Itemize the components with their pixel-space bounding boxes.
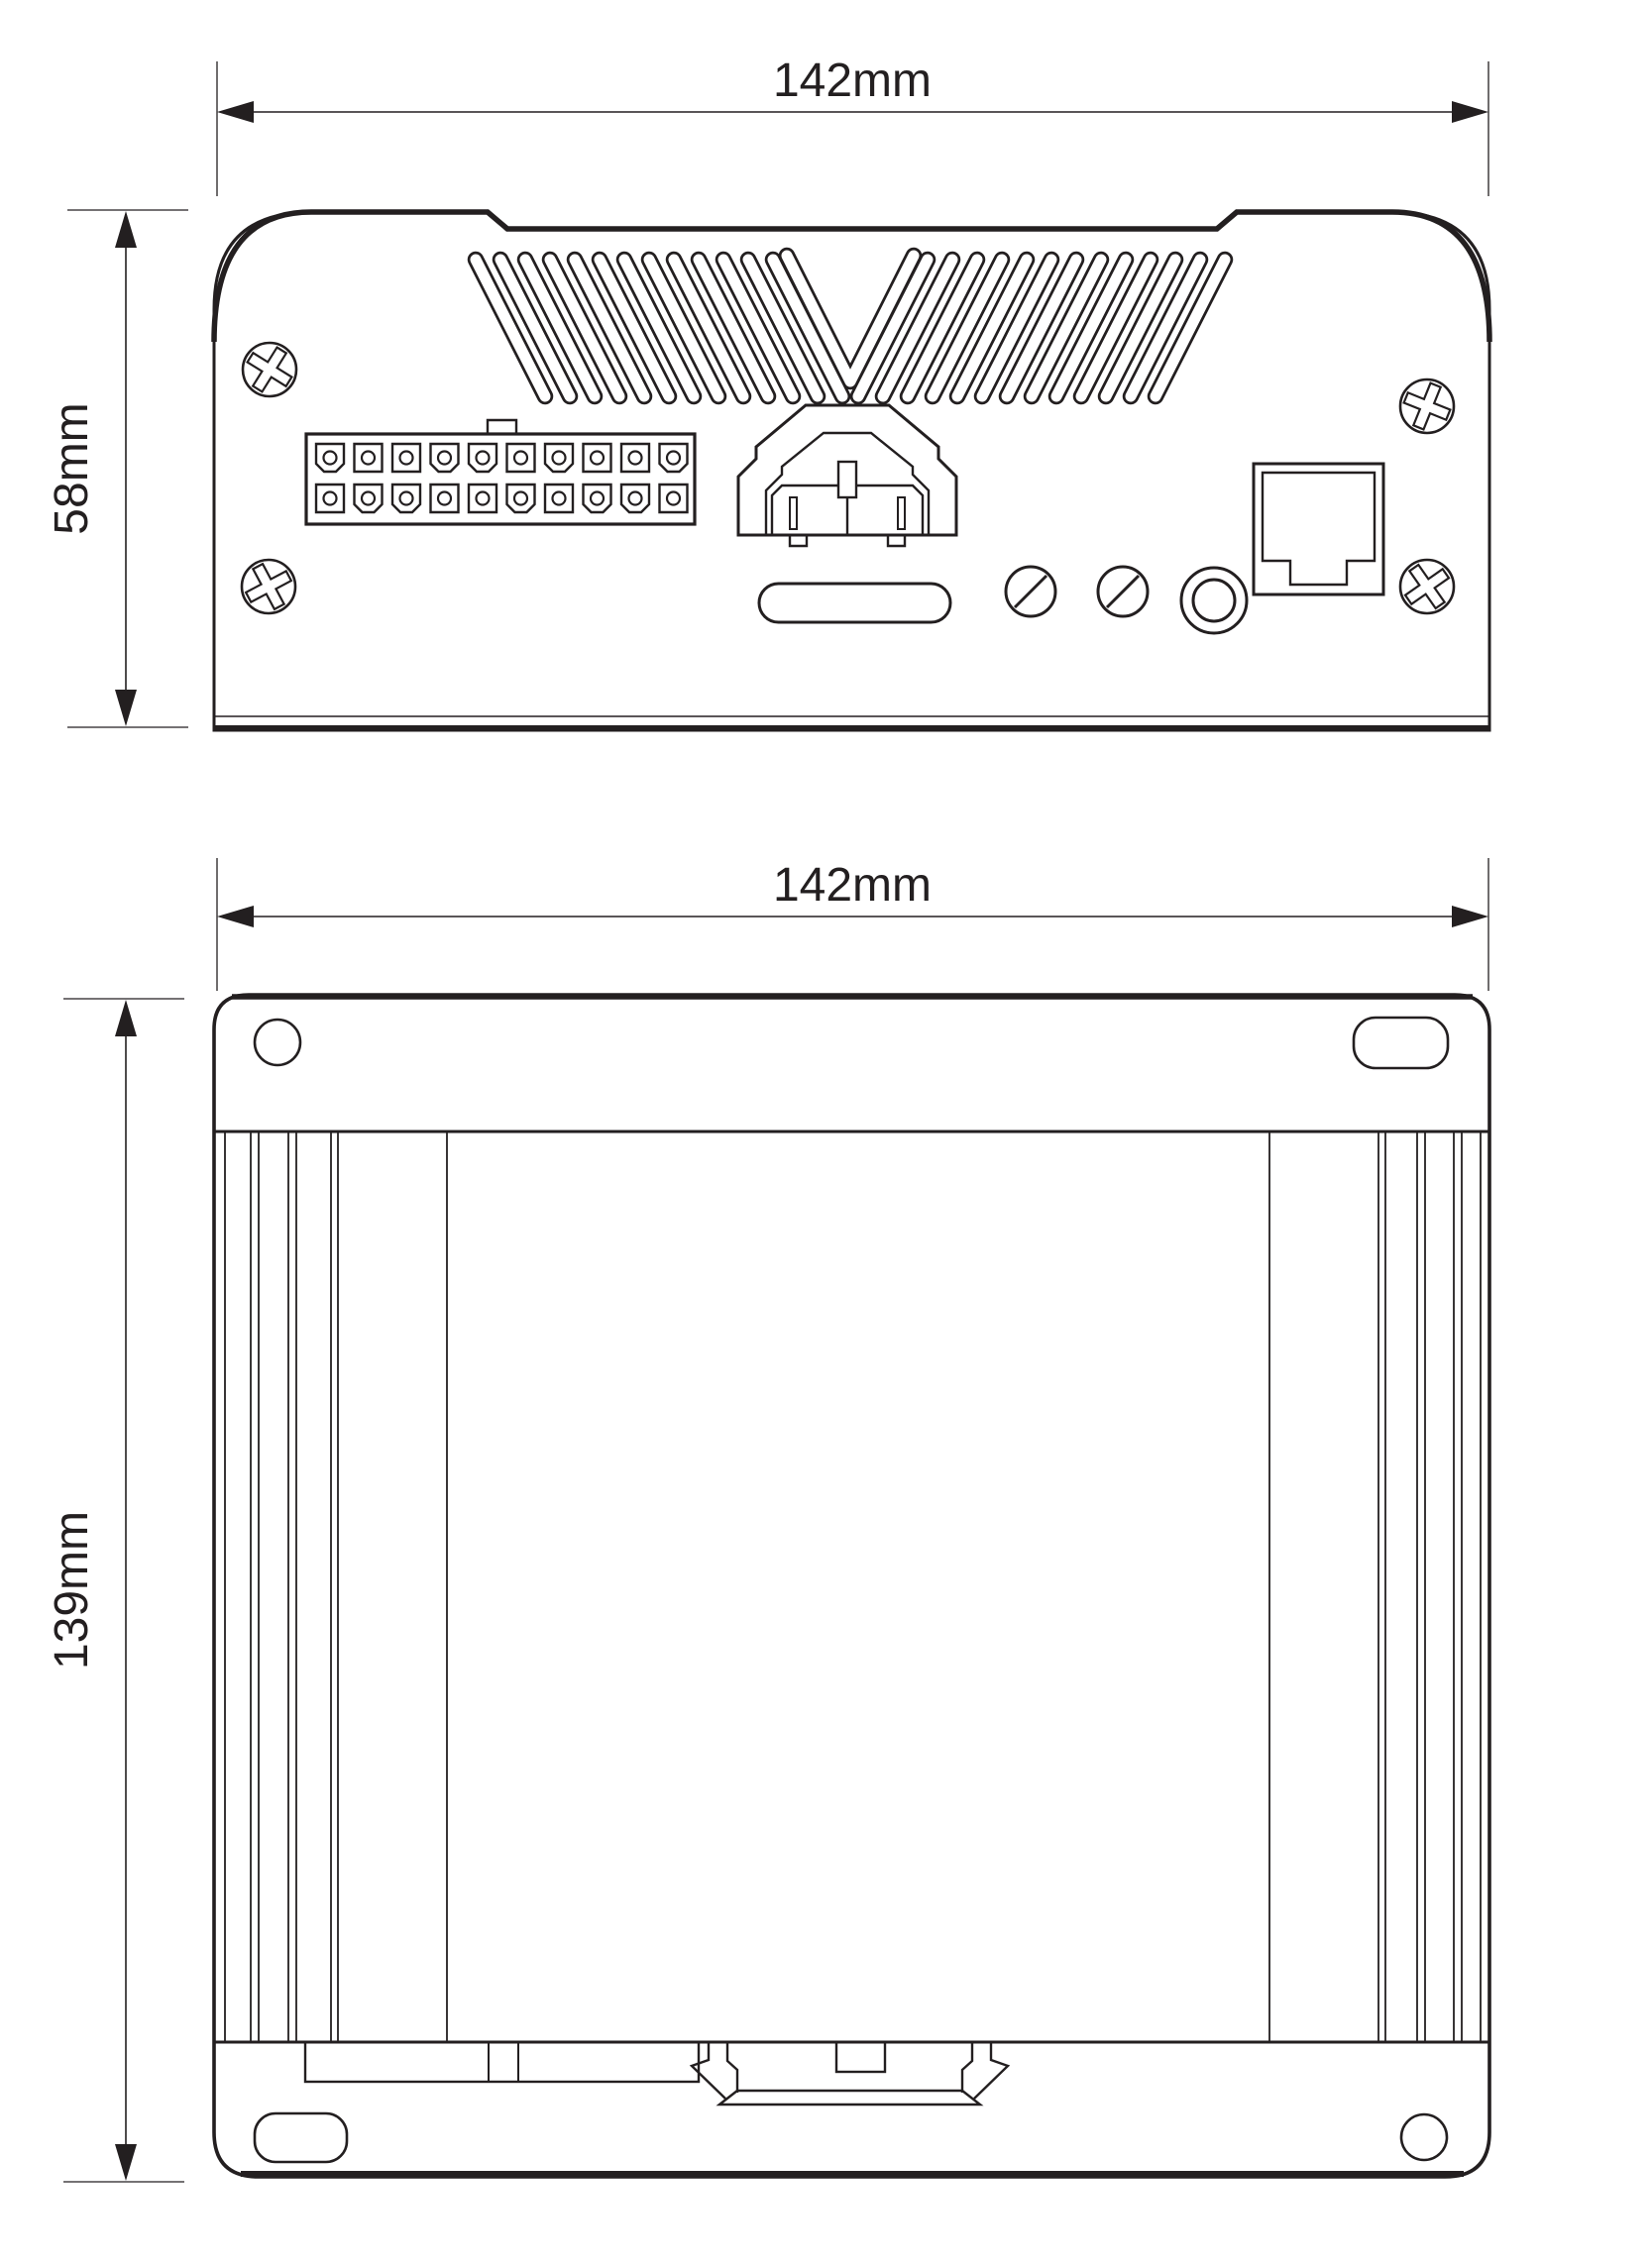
front-height-label: 58mm — [46, 402, 98, 534]
dimension-front-height: 58mm — [46, 210, 188, 727]
top-view: 142mm 139mm — [46, 858, 1489, 2182]
arrow-left-icon — [217, 101, 254, 123]
top-depth-label: 139mm — [46, 1511, 98, 1670]
arrow-down-icon — [115, 2144, 137, 2181]
arrow-down-icon — [115, 690, 137, 726]
arrow-up-icon — [115, 211, 137, 248]
technical-drawing: 142mm 58mm — [0, 0, 1652, 2268]
top-width-label: 142mm — [773, 859, 932, 912]
dimension-top-depth: 139mm — [46, 999, 184, 2182]
arrow-right-icon — [1452, 906, 1488, 927]
top-case-outline — [214, 995, 1489, 2177]
arrow-right-icon — [1452, 101, 1488, 123]
dimension-top-width: 142mm — [217, 858, 1488, 991]
dimension-front-width: 142mm — [217, 54, 1488, 196]
technical-drawing-page: 142mm 58mm — [0, 0, 1652, 2268]
arrow-up-icon — [115, 1000, 137, 1036]
arrow-left-icon — [217, 906, 254, 927]
power-connector-latch — [838, 462, 856, 497]
front-width-label: 142mm — [773, 54, 932, 107]
front-view: 142mm 58mm — [46, 54, 1489, 730]
